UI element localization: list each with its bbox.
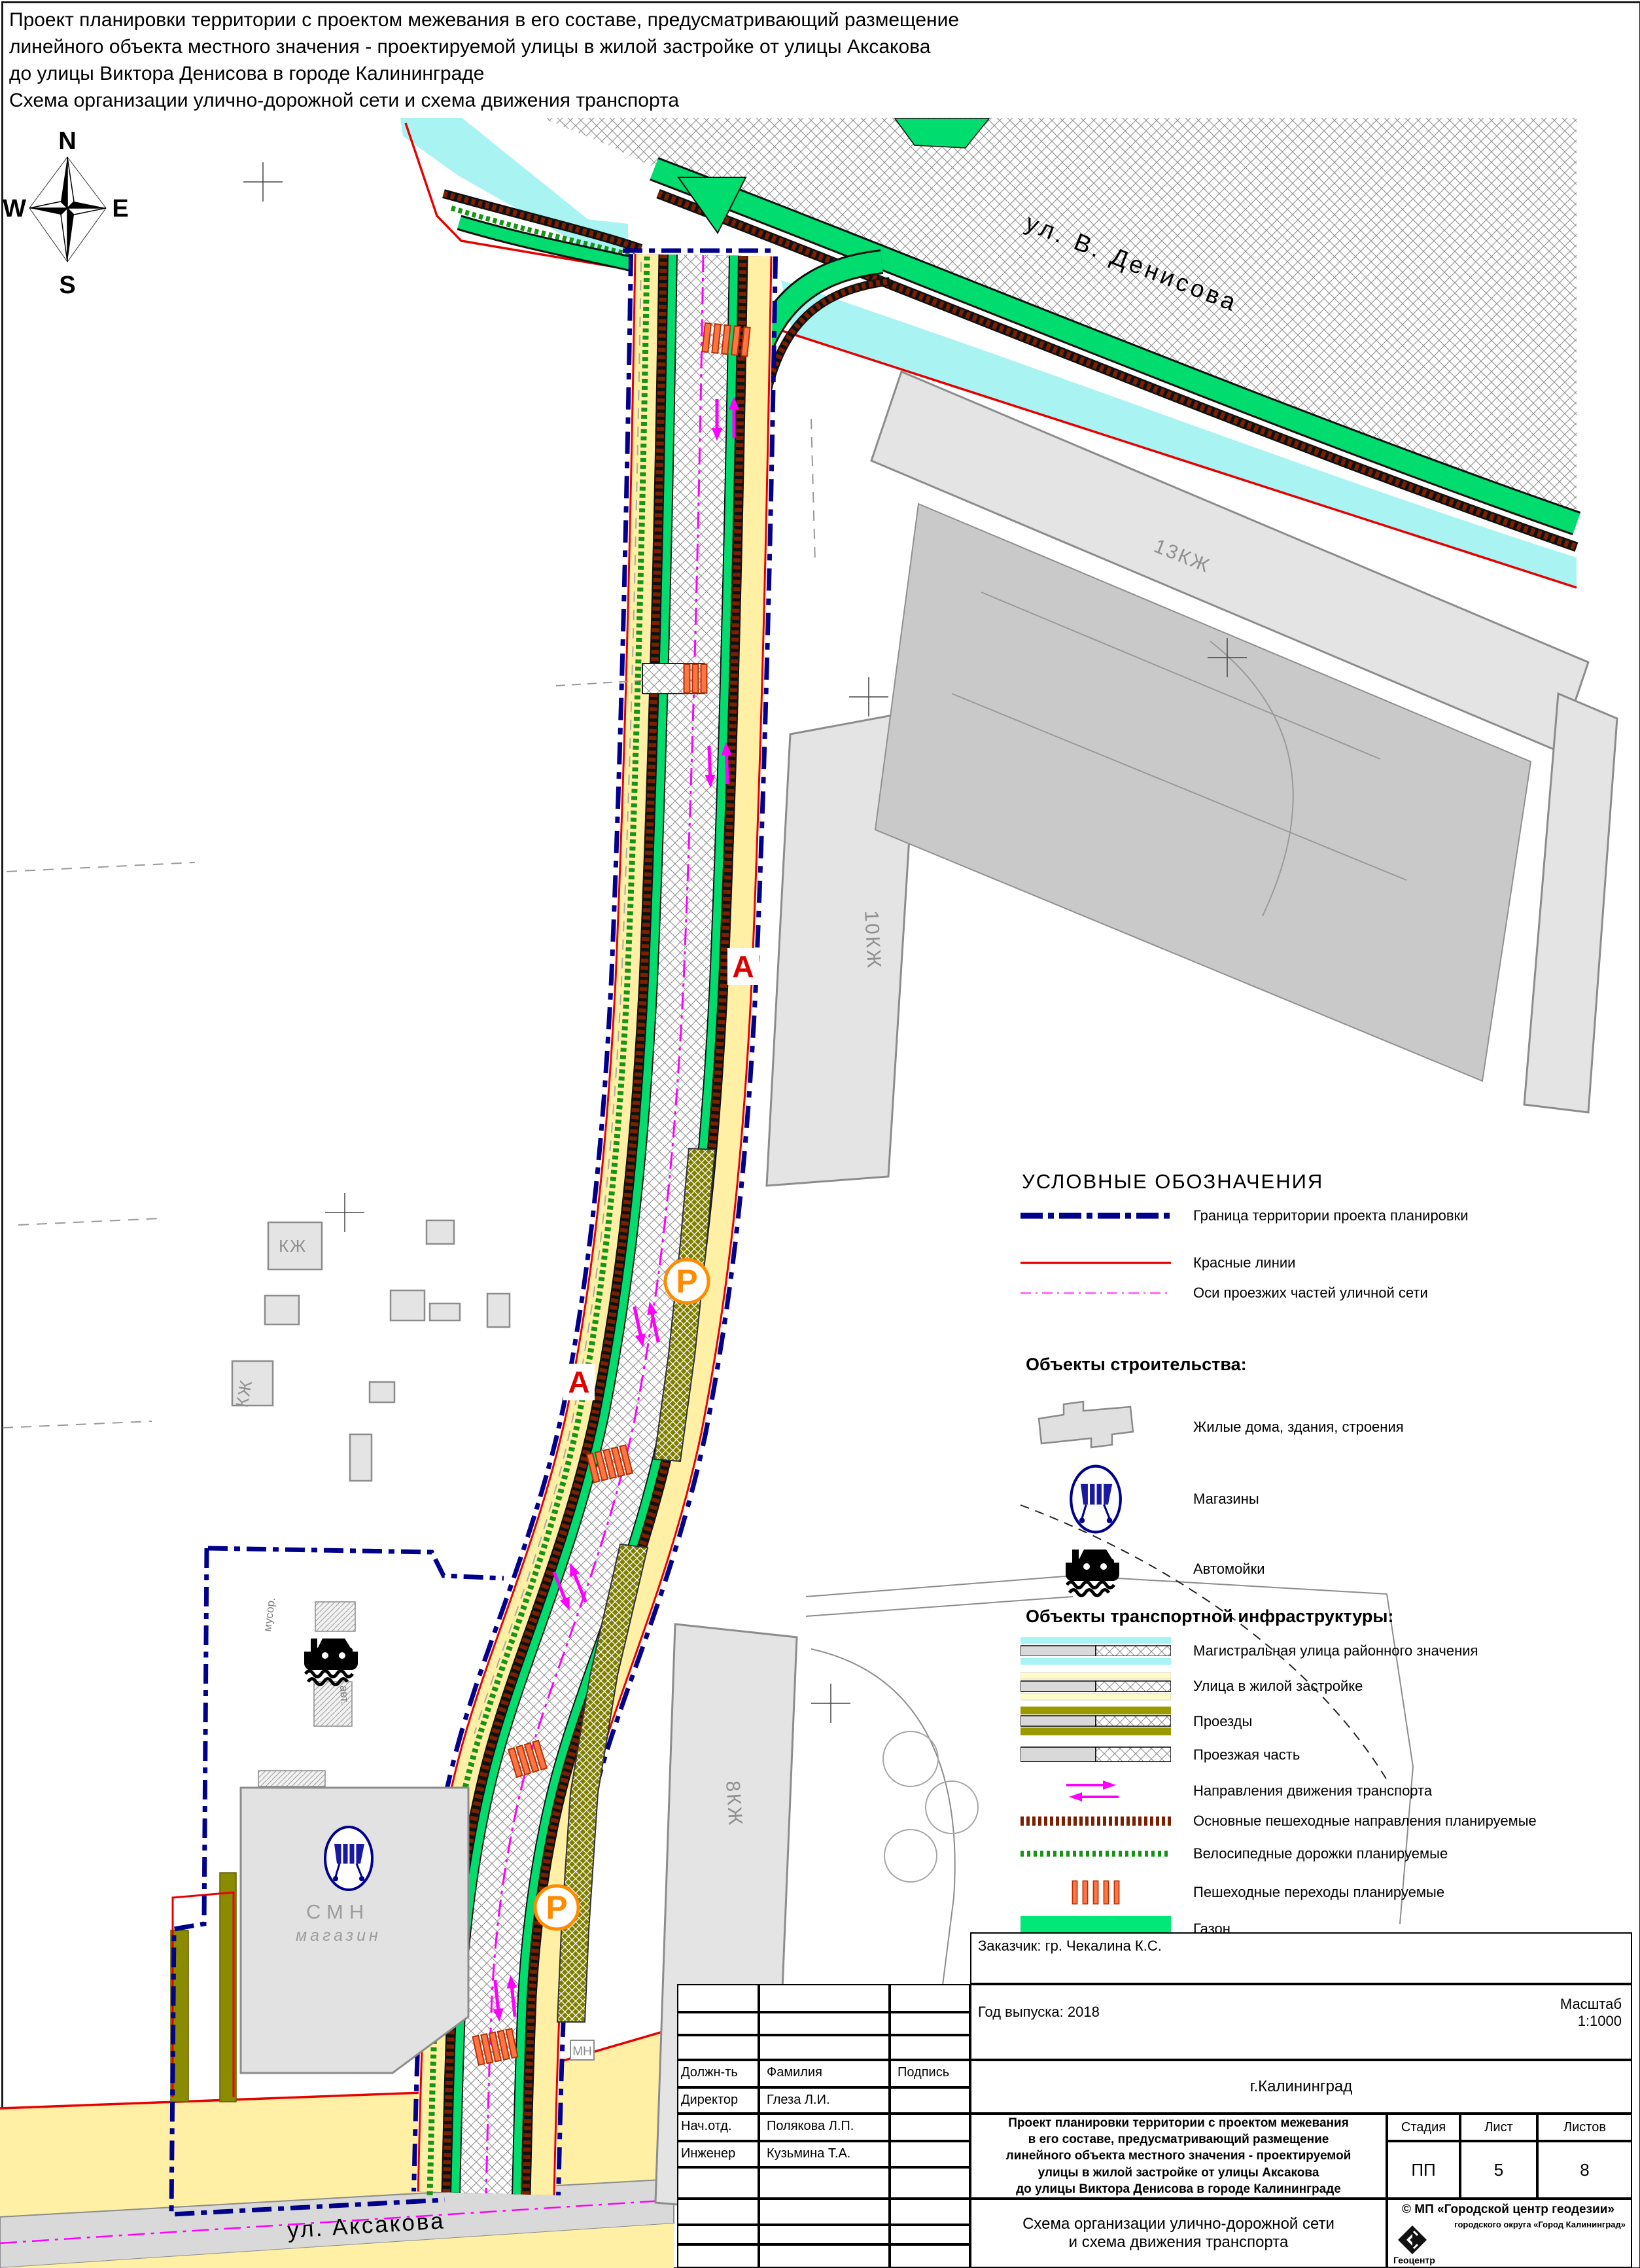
bus-stop-marker-1: А <box>727 948 759 985</box>
tb-sheets-value: 8 <box>1537 2141 1632 2199</box>
bldg-label-8kzh: 8КЖ <box>722 1780 746 1828</box>
bldg-label-10kzh: 10КЖ <box>860 910 885 970</box>
tb-stage-header: Стадия <box>1387 2114 1460 2141</box>
carwash-block <box>304 1602 358 1726</box>
tb-col-surname: Фамилия <box>759 2060 890 2087</box>
compass-w: W <box>3 195 26 222</box>
boundary-line-symbol <box>1021 1205 1171 1227</box>
tb-name-engineer: Кузьмина Т.А. <box>759 2141 890 2167</box>
org-logo-label: Геоцентр <box>1393 2255 1435 2265</box>
tb-sheets-header: Листов <box>1537 2114 1632 2141</box>
tb-scale: Масштаб 1:1000 <box>1560 1996 1622 2030</box>
compass-rose: N S W E <box>3 128 129 299</box>
plan-sheet: Проект планировки территории с проектом … <box>0 0 1640 2268</box>
driveway-symbol <box>1021 1707 1171 1737</box>
compass-s: S <box>59 272 75 299</box>
tb-sheet-value: 5 <box>1460 2141 1537 2199</box>
parking-marker-1: Р <box>665 1260 708 1303</box>
map-canvas: А А Р Р МН ул. В. Денисова ул. Аксакова … <box>0 0 1640 2268</box>
small-buildings <box>232 1220 510 1481</box>
shop-legend-icon <box>1021 1463 1171 1535</box>
carwash-legend-icon <box>1021 1536 1171 1602</box>
geocentr-logo-icon <box>1397 2225 1427 2255</box>
tb-name-director: Глеза Л.И. <box>759 2087 890 2114</box>
bldg-label-smn-sub: магазин <box>296 1926 381 1945</box>
crosswalk-symbol <box>1021 1878 1171 1907</box>
tb-role-director: Директор <box>677 2087 759 2114</box>
carriageway-symbol <box>1021 1743 1171 1767</box>
tb-role-engineer: Инженер <box>677 2141 759 2167</box>
tb-customer-cell: Заказчик: гр. Чекалина К.С. <box>970 1932 1632 1984</box>
carwash-icon <box>304 1639 358 1685</box>
label-wash: авт. <box>338 1685 351 1705</box>
tb-sig-director <box>890 2087 970 2114</box>
title-block: Заказчик: гр. Чекалина К.С. Год выпуска:… <box>677 1932 1632 2268</box>
legend-heading-construction: Объекты строительства: <box>1026 1355 1247 1375</box>
tb-project-cell: Проект планировки территории с проектом … <box>970 2114 1387 2199</box>
tb-org-cell: © МП «Городской центр геодезии» городско… <box>1387 2199 1632 2268</box>
pedestrian-route-symbol <box>1021 1810 1171 1832</box>
org-name: © МП «Городской центр геодезии» <box>1388 2203 1628 2217</box>
red-line-symbol <box>1021 1252 1171 1274</box>
svg-text:А: А <box>568 1365 589 1399</box>
tb-name-head: Полякова Л.П. <box>759 2114 890 2141</box>
arterial-street-symbol <box>1021 1636 1171 1666</box>
tb-sig-head <box>890 2114 970 2141</box>
shop-icon <box>325 1827 372 1890</box>
direction-arrows-symbol <box>1021 1776 1171 1806</box>
bldg-label-kzh-a: КЖ <box>279 1236 307 1256</box>
tb-col-position: Должн-ть <box>677 2060 759 2087</box>
bldg-label-smn: СМН <box>306 1900 370 1923</box>
legend-title: УСЛОВНЫЕ ОБОЗНАЧЕНИЯ <box>1022 1170 1323 1194</box>
compass-n: N <box>58 128 76 155</box>
residential-building-symbol <box>1021 1391 1171 1463</box>
tb-stage-value: ПП <box>1387 2141 1460 2199</box>
residential-street-symbol <box>1021 1671 1171 1701</box>
tb-city-cell: г.Калининград <box>970 2060 1632 2114</box>
mn-building: МН <box>570 2040 594 2060</box>
bus-stop-letter: А <box>732 949 754 983</box>
tb-sheet-header: Лист <box>1460 2114 1537 2141</box>
tb-col-signature: Подпись <box>890 2060 970 2087</box>
tb-year-cell: Год выпуска: 2018 Масштаб 1:1000 <box>970 1984 1632 2060</box>
tb-sig-engineer <box>890 2141 970 2167</box>
legend-heading-transport: Объекты транспортной инфраструктуры: <box>1026 1606 1393 1627</box>
tb-role-head: Нач.отд. <box>677 2114 759 2141</box>
tb-scheme-cell: Схема организации улично-дорожной сети и… <box>970 2199 1387 2268</box>
parking-marker-2: Р <box>535 1886 578 1929</box>
crosswalk-branch <box>684 664 707 693</box>
label-trash: мусор. <box>261 1597 277 1632</box>
org-sub: городского округа «Город Калининград» <box>1454 2220 1626 2229</box>
svg-text:Р: Р <box>546 1889 567 1926</box>
bus-stop-marker-2: А <box>563 1364 595 1400</box>
compass-e: E <box>112 195 128 222</box>
svg-text:МН: МН <box>572 2045 592 2059</box>
parking-letter: Р <box>676 1263 697 1300</box>
bike-path-symbol <box>1021 1844 1171 1864</box>
axis-line-symbol <box>1021 1282 1171 1304</box>
